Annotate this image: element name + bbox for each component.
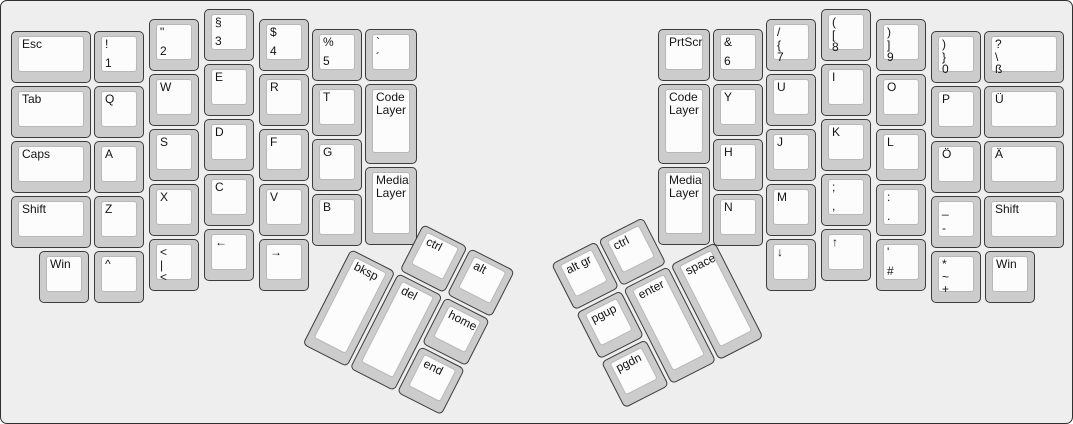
key-g[interactable]: G (312, 139, 362, 191)
key-legend: Code Layer (669, 91, 699, 116)
key-semicolon[interactable]: ;, (821, 174, 871, 226)
down-arrow-icon: ↓ (777, 246, 805, 259)
key-d[interactable]: D (204, 119, 254, 171)
keycap: H (720, 144, 756, 180)
keycap: G (319, 144, 355, 180)
keycap: Ö (938, 146, 974, 182)
key-2[interactable]: "2 (149, 19, 199, 71)
keycap: O (883, 79, 919, 115)
key-legend: ! (105, 38, 133, 51)
key-legend: bksp (352, 260, 383, 284)
key-legend: Shift (22, 203, 80, 216)
keycap: !1 (101, 36, 137, 72)
key-legend: $ (270, 26, 298, 39)
keycap: Q (101, 91, 137, 127)
key-legend: E (215, 71, 243, 84)
key-legend: Esc (22, 38, 80, 51)
keycap: R (266, 79, 302, 115)
key-t[interactable]: T (312, 84, 362, 136)
key-legend: alt (471, 259, 502, 283)
keycap: Win (992, 256, 1028, 292)
key-legend: 3 (215, 35, 243, 48)
keycap: Media Layer (372, 172, 410, 234)
key-legend: 8 (832, 41, 860, 54)
key-win-left[interactable]: Win (39, 251, 89, 303)
key-media-layer-right[interactable]: Media Layer (658, 167, 710, 245)
keycap: Ü (991, 91, 1057, 127)
key-legend: alt gr (564, 253, 595, 277)
key-legend: & (724, 36, 752, 49)
key-arrow-down[interactable]: ↓ (766, 239, 816, 291)
key-legend: ; (832, 181, 860, 194)
right-arrow-icon: → (270, 246, 298, 259)
keycap: Shift (18, 201, 84, 237)
key-b[interactable]: B (312, 194, 362, 246)
key-caret[interactable]: ^ (94, 251, 144, 303)
keycap: <|< (156, 244, 192, 280)
key-legend: 0 (942, 63, 970, 76)
keycap: Tab (18, 91, 84, 127)
key-legend: \ (995, 51, 1053, 64)
key-1[interactable]: !1 (94, 31, 144, 83)
keycap: $4 (266, 24, 302, 60)
key-legend: < (160, 246, 188, 259)
key-4[interactable]: $4 (259, 19, 309, 71)
keycap: ([8 (828, 14, 864, 50)
key-0[interactable]: )}0 (931, 31, 981, 83)
keycap: T (319, 89, 355, 125)
keycap: J (773, 134, 809, 170)
key-k[interactable]: K (821, 119, 871, 171)
key-m[interactable]: M (766, 184, 816, 236)
keycap: Ä (991, 146, 1057, 182)
key-legend: % (323, 36, 351, 49)
key-legend: ) (942, 38, 970, 51)
keycap: Esc (18, 36, 84, 72)
key-p[interactable]: P (931, 86, 981, 138)
key-f[interactable]: F (259, 129, 309, 181)
key-legend: Media Layer (669, 174, 699, 199)
key-eszett[interactable]: ?\ß (984, 31, 1064, 83)
key-legend: Q (105, 93, 133, 106)
keycap: Code Layer (665, 89, 703, 153)
key-caps[interactable]: Caps (11, 141, 91, 193)
key-legend: ctrl (424, 235, 455, 259)
keycap: ← (211, 234, 247, 270)
keycap: *~+ (938, 256, 974, 292)
keycap: P (938, 91, 974, 127)
key-code-layer-right[interactable]: Code Layer (658, 84, 710, 164)
key-asterisk-tilde-plus[interactable]: *~+ (931, 251, 981, 303)
key-s[interactable]: S (149, 129, 199, 181)
keycap: pgup (585, 298, 633, 346)
key-legend: Tab (22, 93, 80, 106)
key-legend: pgdn (614, 351, 645, 375)
keycap: U (773, 79, 809, 115)
keycap: alt gr (560, 249, 608, 297)
keycap: pgdn (609, 347, 657, 395)
key-legend: . (887, 210, 915, 223)
keycap: Y (720, 89, 756, 125)
key-colon[interactable]: :. (876, 184, 926, 236)
key-n[interactable]: N (713, 194, 763, 246)
keycap: M (773, 189, 809, 225)
keycap: ↑ (828, 234, 864, 270)
key-legend: I (832, 71, 860, 84)
keycap: Shift (991, 201, 1057, 237)
key-legend: N (724, 201, 752, 214)
key-legend: : (887, 191, 915, 204)
key-o[interactable]: O (876, 74, 926, 126)
key-e[interactable]: E (204, 64, 254, 116)
key-5[interactable]: %5 (312, 29, 362, 81)
key-legend: * (942, 258, 970, 271)
key-legend: F (270, 136, 298, 149)
keycap: ;, (828, 179, 864, 215)
key-9[interactable]: )]9 (876, 19, 926, 71)
key-legend: end (421, 357, 452, 381)
keycap: Code Layer (372, 89, 410, 153)
keycap: K (828, 124, 864, 160)
key-code-layer-left[interactable]: Code Layer (365, 84, 417, 164)
keycap: end (408, 354, 456, 402)
keycap: C (211, 179, 247, 215)
key-grave-acute[interactable]: `´ (365, 29, 417, 81)
key-legend: " (160, 26, 188, 39)
key-j[interactable]: J (766, 129, 816, 181)
key-i[interactable]: I (821, 64, 871, 116)
key-legend: D (215, 126, 243, 139)
keycap: )]9 (883, 24, 919, 60)
key-3[interactable]: §3 (204, 9, 254, 61)
key-legend: G (323, 146, 351, 159)
keycap: B (319, 199, 355, 235)
key-r[interactable]: R (259, 74, 309, 126)
key-legend: ' (887, 246, 915, 259)
key-arrow-up[interactable]: ↑ (821, 229, 871, 281)
key-underscore[interactable]: _- (931, 196, 981, 248)
key-w[interactable]: W (149, 74, 199, 126)
keycap: `´ (372, 34, 410, 70)
key-legend: - (942, 222, 970, 235)
key-legend: § (215, 16, 243, 29)
keycap: §3 (211, 14, 247, 50)
key-legend: U (777, 81, 805, 94)
key-auml[interactable]: Ä (984, 141, 1064, 193)
keycap: S (156, 134, 192, 170)
key-q[interactable]: Q (94, 86, 144, 138)
key-legend: P (942, 93, 970, 106)
keycap: '# (883, 244, 919, 280)
key-legend: < (160, 271, 188, 284)
key-legend: T (323, 91, 351, 104)
key-legend: K (832, 126, 860, 139)
key-legend: space (683, 253, 714, 277)
keycap: _- (938, 201, 974, 237)
key-media-layer-left[interactable]: Media Layer (365, 167, 417, 245)
key-y[interactable]: Y (713, 84, 763, 136)
key-legend: Caps (22, 148, 80, 161)
keycap: ctrl (607, 225, 655, 273)
key-legend: PrtScr (669, 36, 699, 49)
key-v[interactable]: V (259, 184, 309, 236)
key-legend: 1 (105, 57, 133, 70)
keyboard-layout-canvas: Esc !1 "2 §3 $4 %5 `´ Tab Q W E R T Code… (0, 0, 1073, 424)
left-arrow-icon: ← (215, 236, 243, 249)
key-legend: Ä (995, 148, 1053, 161)
keycap: ^ (101, 256, 137, 292)
key-legend: # (887, 265, 915, 278)
key-legend: Win (996, 258, 1024, 271)
key-legend: pgup (589, 302, 620, 326)
key-ouml[interactable]: Ö (931, 141, 981, 193)
keycap: alt (458, 256, 506, 304)
key-legend: Win (50, 258, 78, 271)
key-legend: ´ (376, 51, 406, 64)
key-legend: Code Layer (376, 91, 406, 116)
keycap: D (211, 124, 247, 160)
key-legend: O (887, 81, 915, 94)
key-legend: 9 (887, 51, 915, 64)
key-legend: M (777, 191, 805, 204)
keycap: /{7 (773, 24, 809, 60)
key-legend: enter (636, 277, 667, 301)
key-legend: Z (105, 203, 133, 216)
key-legend: Shift (995, 203, 1053, 216)
key-prtscr[interactable]: PrtScr (658, 29, 710, 81)
key-legend: ^ (105, 258, 133, 271)
key-arrow-left[interactable]: ← (204, 229, 254, 281)
key-legend: Media Layer (376, 174, 406, 199)
keycap: )}0 (938, 36, 974, 72)
key-shift-right[interactable]: Shift (984, 196, 1064, 248)
key-legend: W (160, 81, 188, 94)
key-legend: V (270, 191, 298, 204)
keycap: F (266, 134, 302, 170)
keycap: L (883, 134, 919, 170)
key-l[interactable]: L (876, 129, 926, 181)
keycap: E (211, 69, 247, 105)
key-c[interactable]: C (204, 174, 254, 226)
key-legend: ctrl (611, 228, 642, 252)
key-apostrophe-hash[interactable]: '# (876, 239, 926, 291)
keycap: X (156, 189, 192, 225)
keycap: Z (101, 201, 137, 237)
keycap: ↓ (773, 244, 809, 280)
key-z[interactable]: Z (94, 196, 144, 248)
key-legend: H (724, 146, 752, 159)
keycap: V (266, 189, 302, 225)
key-arrow-right[interactable]: → (259, 239, 309, 291)
keycap: Caps (18, 146, 84, 182)
keycap: Media Layer (665, 172, 703, 234)
key-legend: ß (995, 63, 1053, 76)
key-uuml[interactable]: Ü (984, 86, 1064, 138)
keycap: ?\ß (991, 36, 1057, 72)
key-legend: C (215, 181, 243, 194)
key-x[interactable]: X (149, 184, 199, 236)
key-legend: home (446, 308, 477, 332)
key-legend: 7 (777, 51, 805, 64)
keycap: I (828, 69, 864, 105)
key-win-right[interactable]: Win (985, 251, 1035, 303)
keycap: W (156, 79, 192, 115)
key-legend: ` (376, 36, 406, 49)
key-legend: ? (995, 38, 1053, 51)
keycap: home (433, 305, 481, 353)
key-legend: J (777, 136, 805, 149)
keycap: ctrl (411, 232, 459, 280)
key-legend: del (399, 284, 430, 308)
keycap: → (266, 244, 302, 280)
key-legend: + (942, 283, 970, 296)
key-angle-bracket[interactable]: <|< (149, 239, 199, 291)
key-legend: 2 (160, 45, 188, 58)
key-shift-left[interactable]: Shift (11, 196, 91, 248)
key-legend: ) (887, 26, 915, 39)
key-legend: 6 (724, 55, 752, 68)
key-legend: S (160, 136, 188, 149)
key-legend: B (323, 201, 351, 214)
key-legend: 5 (323, 55, 351, 68)
key-tab[interactable]: Tab (11, 86, 91, 138)
key-legend: / (777, 26, 805, 39)
keycap: A (101, 146, 137, 182)
key-legend: 4 (270, 45, 298, 58)
keycap: PrtScr (665, 34, 703, 70)
keycap: "2 (156, 24, 192, 60)
key-legend: _ (942, 203, 970, 216)
key-legend: A (105, 148, 133, 161)
key-7[interactable]: /{7 (766, 19, 816, 71)
key-legend: Y (724, 91, 752, 104)
keycap: N (720, 199, 756, 235)
keycap: :. (883, 189, 919, 225)
key-legend: , (832, 200, 860, 213)
key-legend: Ö (942, 148, 970, 161)
key-legend: R (270, 81, 298, 94)
key-legend: X (160, 191, 188, 204)
key-6[interactable]: &6 (713, 29, 763, 81)
key-h[interactable]: H (713, 139, 763, 191)
key-8[interactable]: ([8 (821, 9, 871, 61)
key-esc[interactable]: Esc (11, 31, 91, 83)
keycap: %5 (319, 34, 355, 70)
key-legend: Ü (995, 93, 1053, 106)
key-legend: ( (832, 16, 860, 29)
keycap: Win (46, 256, 82, 292)
key-legend: L (887, 136, 915, 149)
up-arrow-icon: ↑ (832, 236, 860, 249)
key-a[interactable]: A (94, 141, 144, 193)
key-u[interactable]: U (766, 74, 816, 126)
keycap: &6 (720, 34, 756, 70)
